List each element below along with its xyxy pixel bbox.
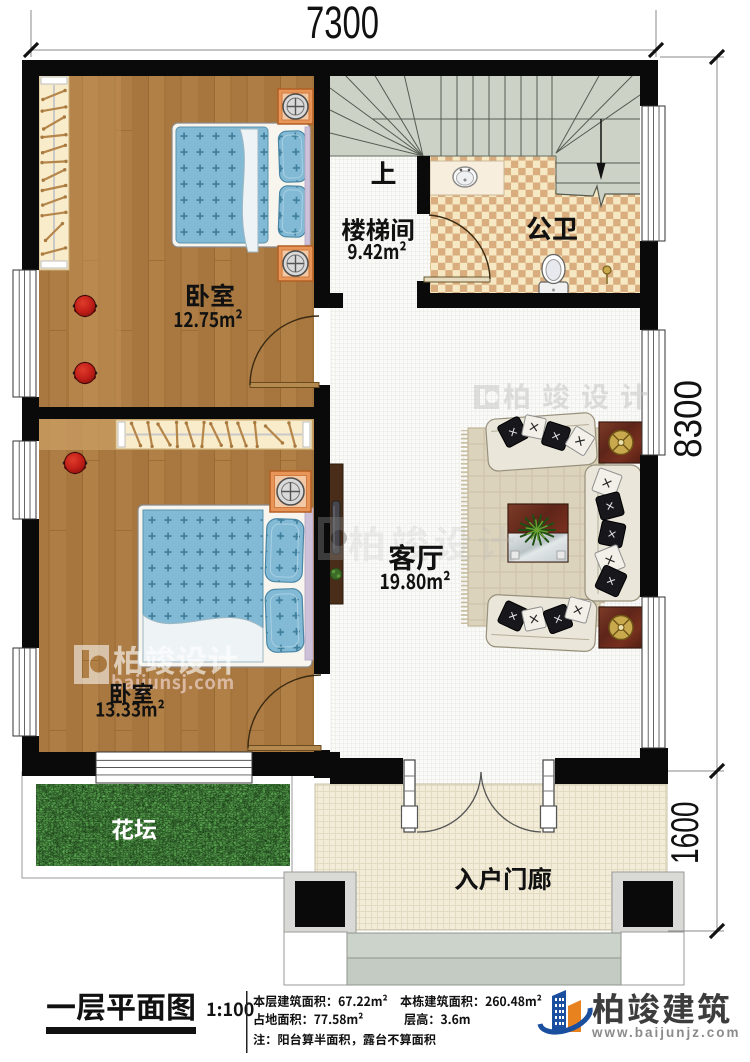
svg-text:8300: 8300 [665, 380, 709, 458]
svg-text:1600: 1600 [664, 802, 708, 864]
svg-text:www.baijunjz.com: www.baijunjz.com [591, 1025, 741, 1040]
svg-text:7300: 7300 [306, 0, 379, 48]
